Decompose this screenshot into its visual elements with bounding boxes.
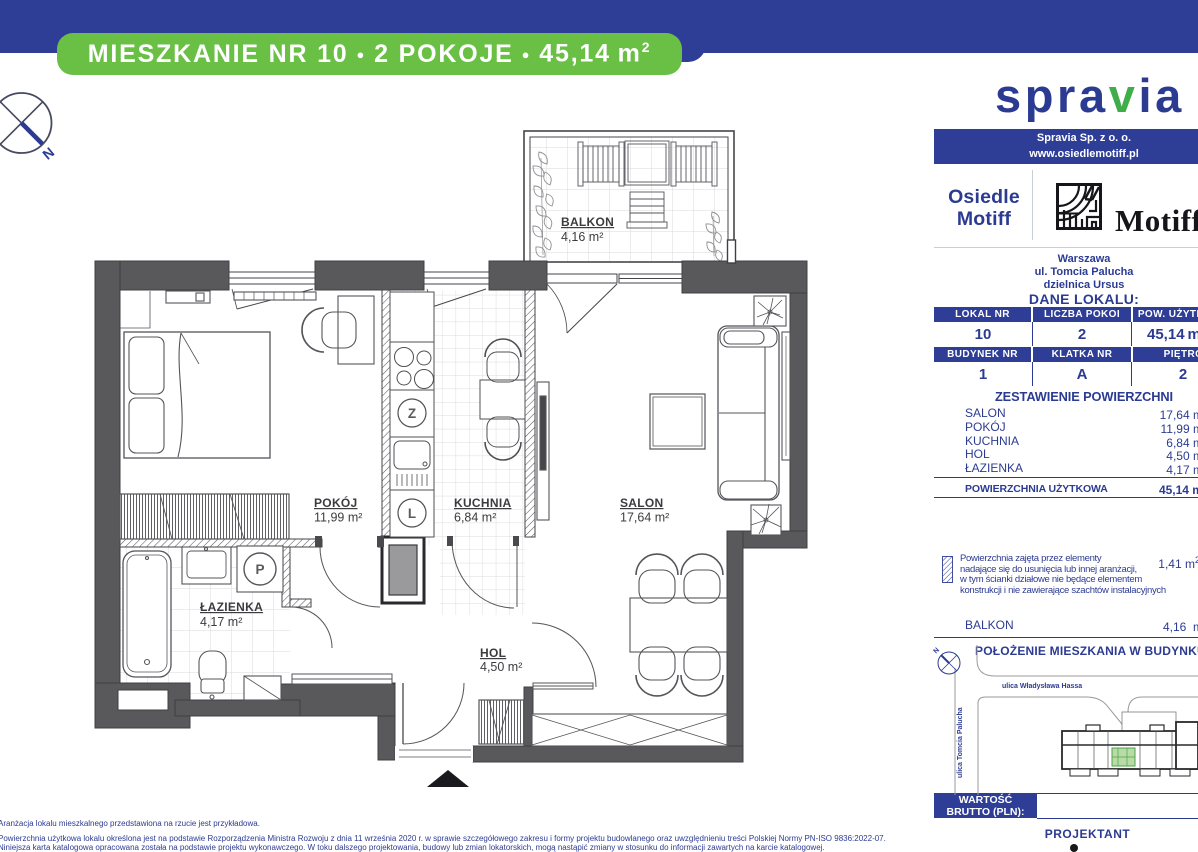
svg-text:17,64 m²: 17,64 m² (620, 511, 669, 525)
svg-text:4,50 m²: 4,50 m² (480, 660, 522, 674)
svg-text:11,99 m²: 11,99 m² (314, 511, 362, 525)
svg-text:6,84 m²: 6,84 m² (454, 511, 496, 525)
svg-text:ulica Tomcia Palucha: ulica Tomcia Palucha (957, 707, 964, 778)
svg-text:ŁAZIENKA: ŁAZIENKA (200, 600, 263, 614)
svg-text:N: N (932, 647, 941, 656)
svg-text:4,17 m²: 4,17 m² (200, 615, 242, 629)
svg-text:Z: Z (408, 406, 416, 421)
svg-text:SALON: SALON (620, 496, 664, 510)
svg-text:HOL: HOL (480, 646, 506, 660)
svg-text:4,16 m²: 4,16 m² (561, 230, 603, 244)
svg-text:N: N (39, 144, 57, 163)
svg-text:POKÓJ: POKÓJ (314, 495, 358, 510)
svg-text:L: L (408, 506, 416, 521)
svg-text:P: P (255, 562, 264, 577)
svg-text:BALKON: BALKON (561, 215, 614, 229)
svg-text:KUCHNIA: KUCHNIA (454, 496, 511, 510)
svg-text:ulica Władysława Hassa: ulica Władysława Hassa (1002, 683, 1082, 690)
